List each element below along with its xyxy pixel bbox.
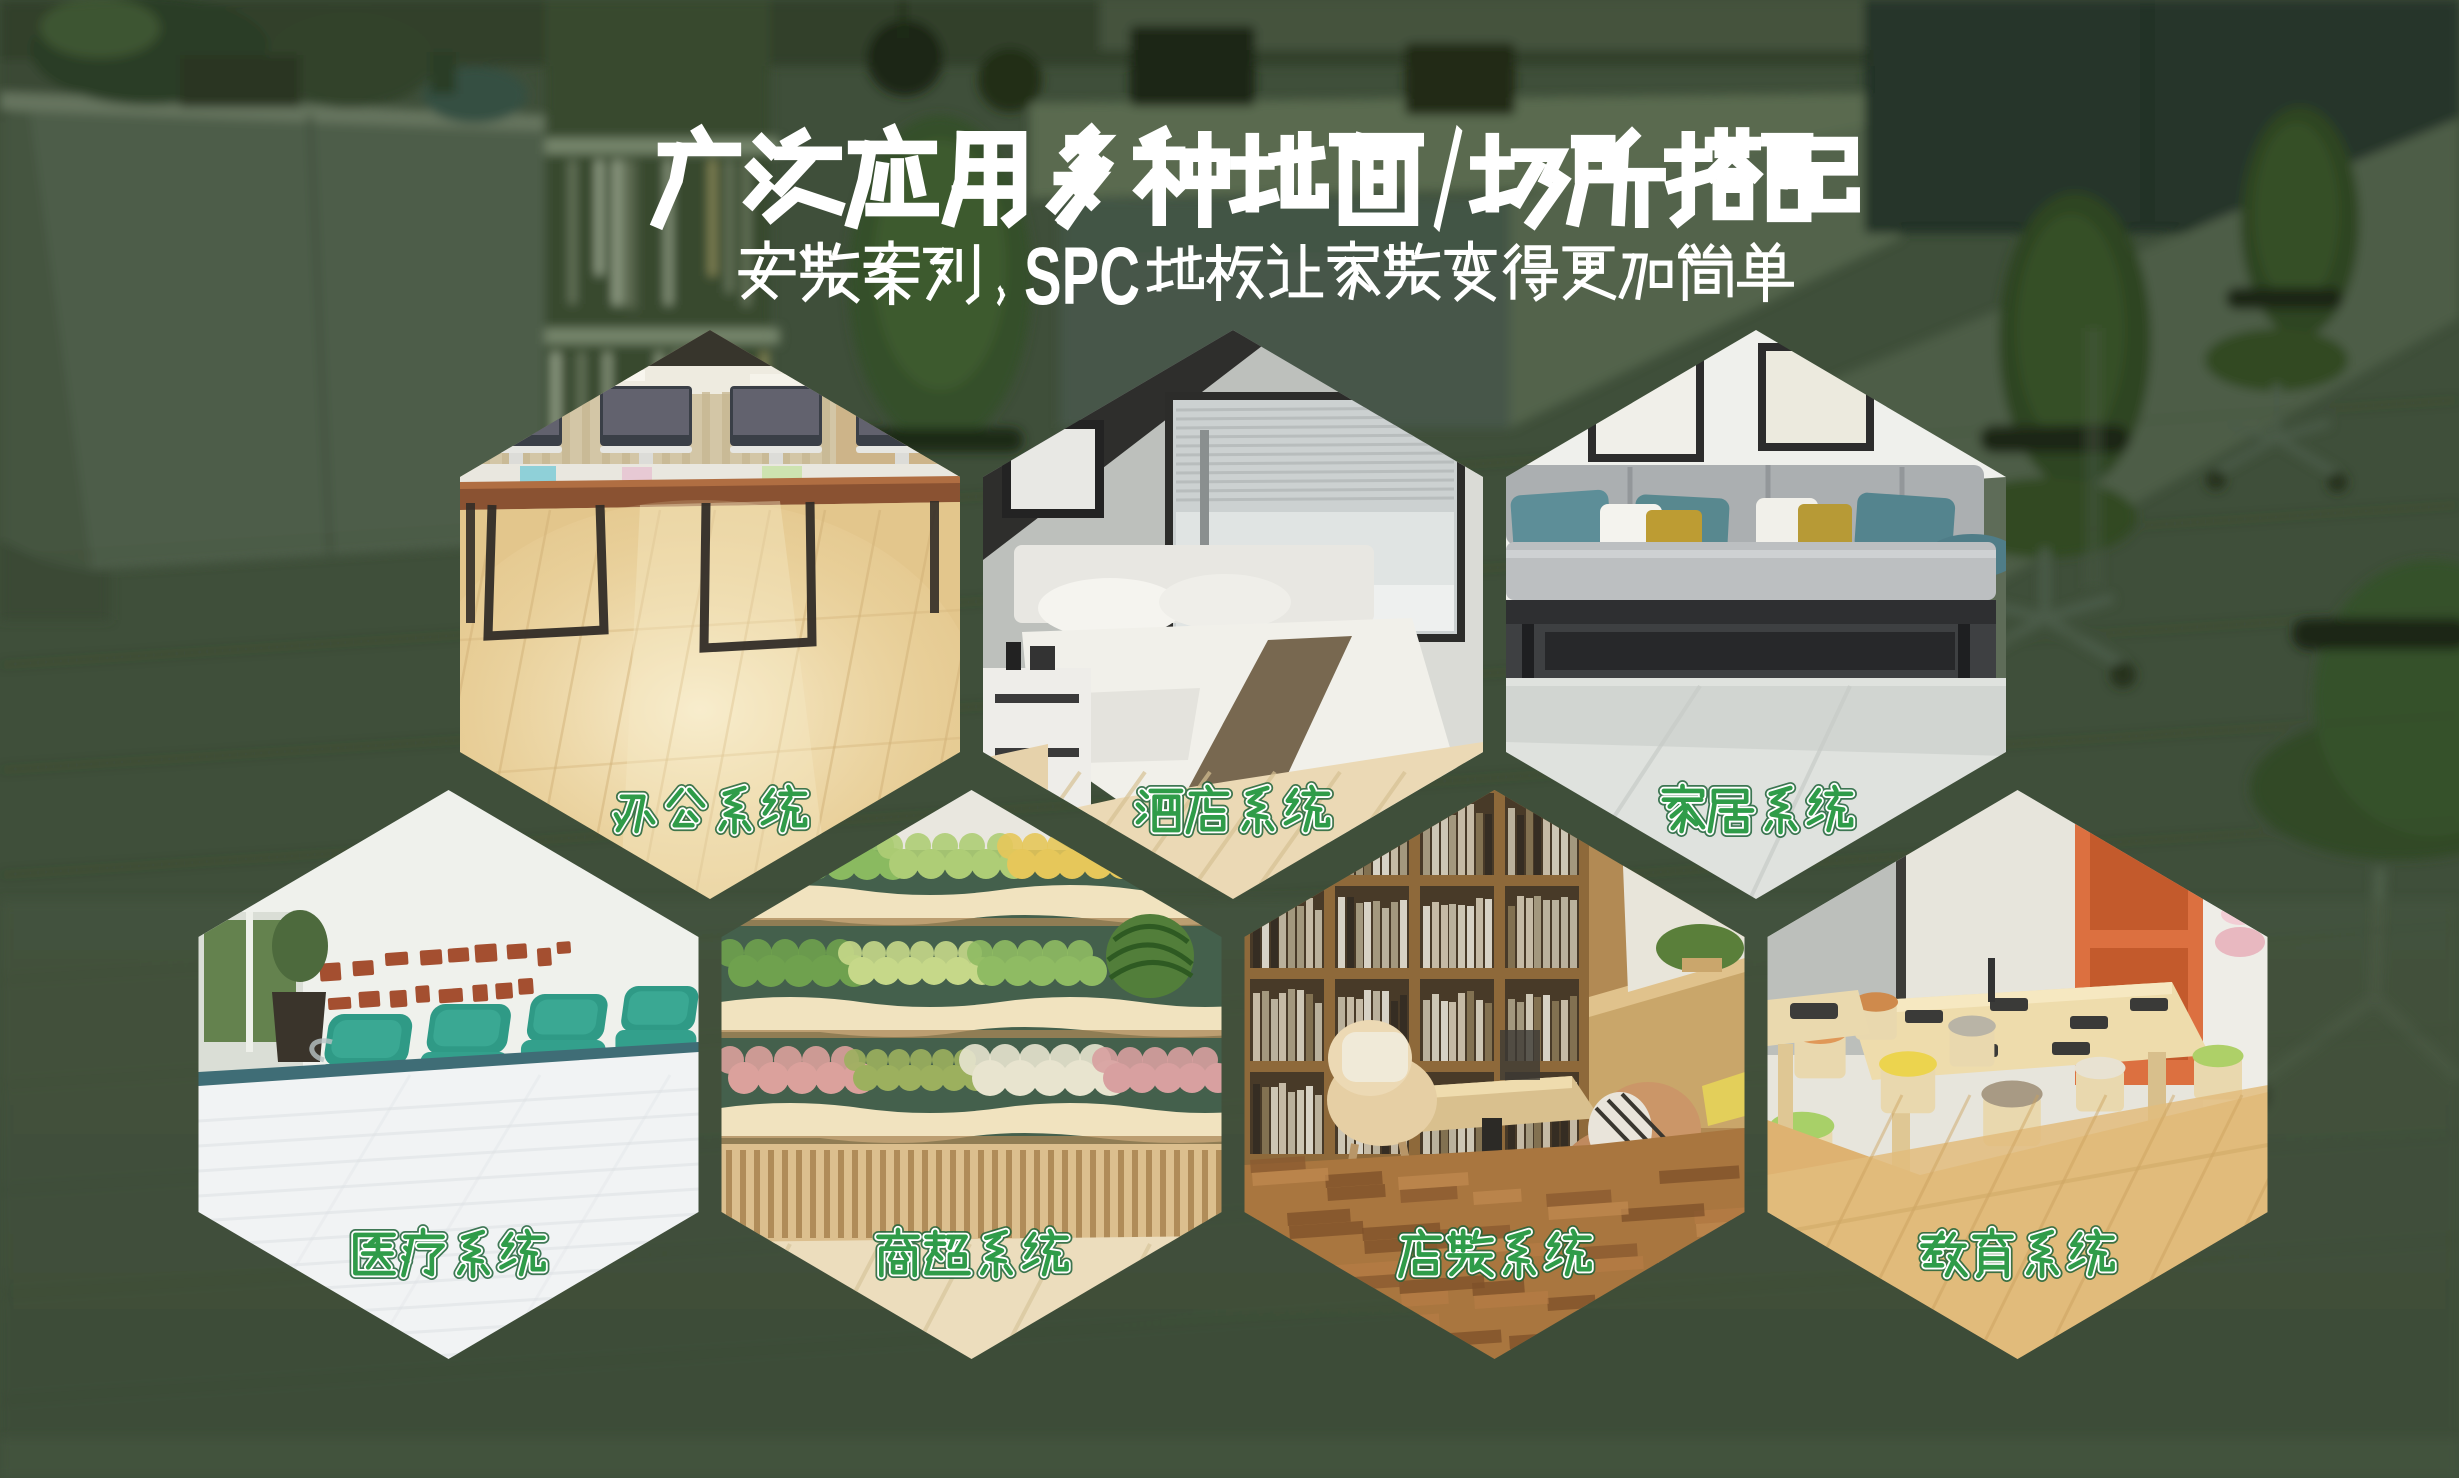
svg-text:SPC: SPC: [1024, 231, 1140, 322]
